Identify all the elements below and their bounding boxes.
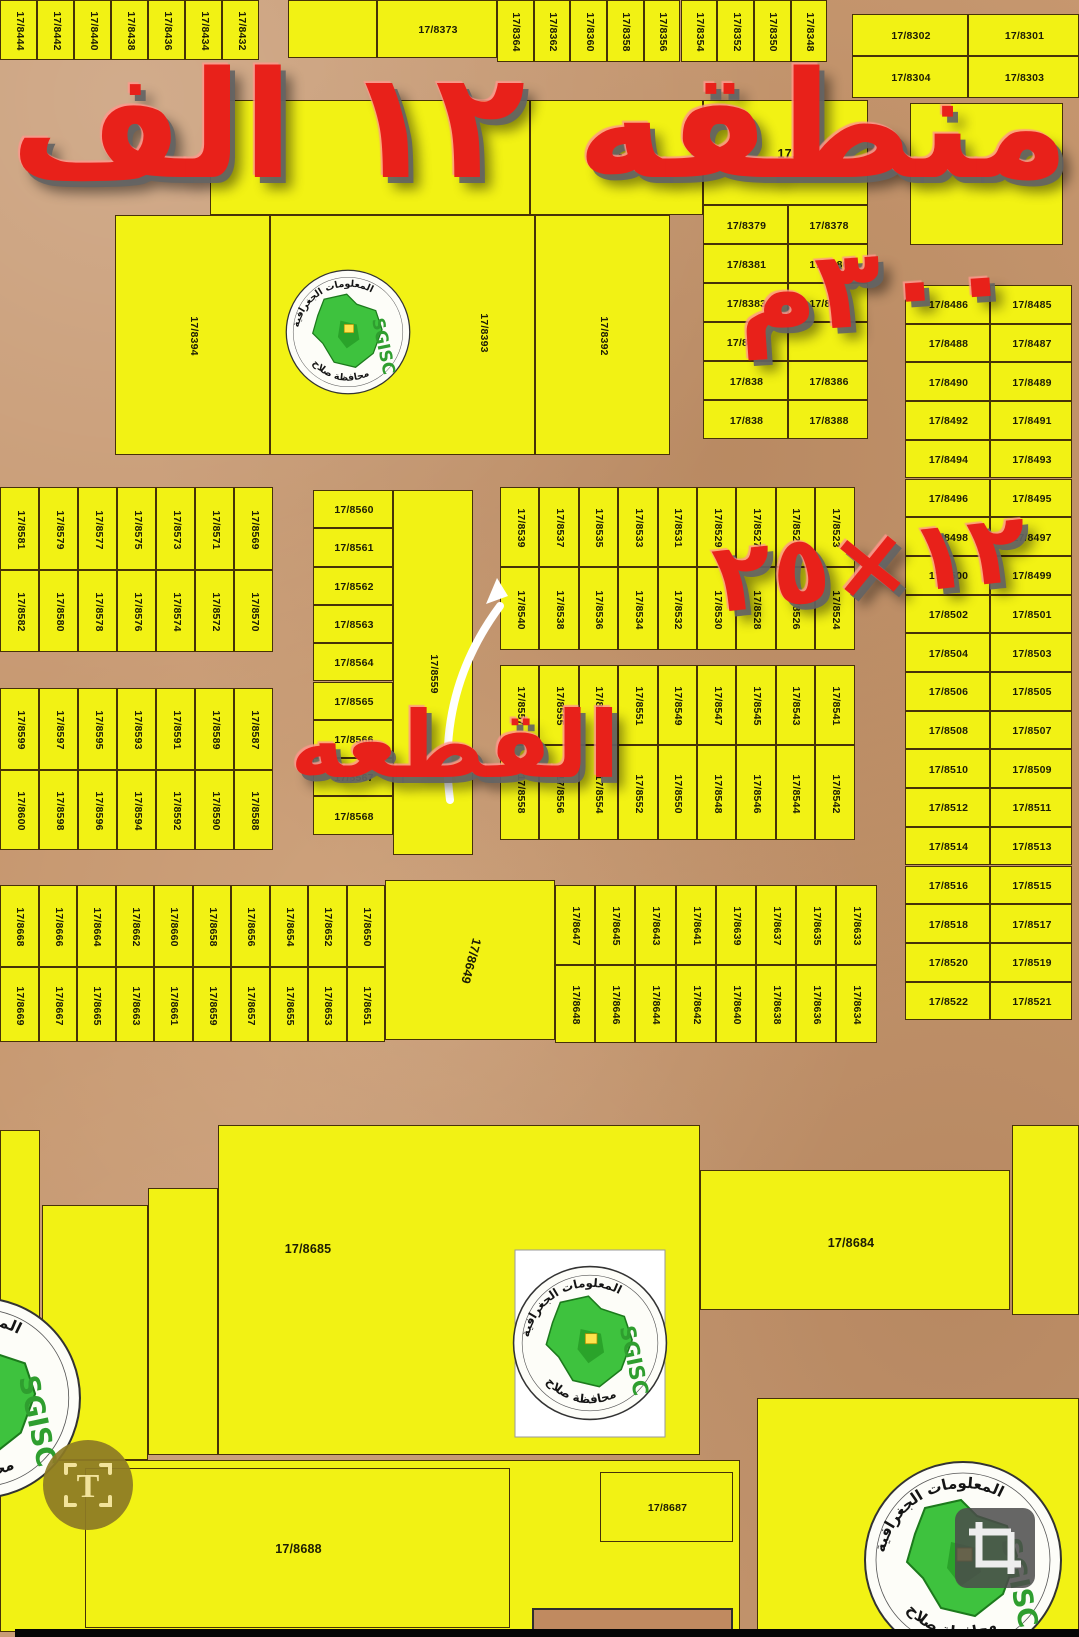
t-icon-letter: T bbox=[77, 1468, 100, 1505]
area-size-overlay: ٣٠٠م bbox=[687, 222, 1064, 356]
sgisc-seal-top bbox=[286, 270, 409, 393]
text-scan-icon[interactable]: T bbox=[43, 1440, 133, 1530]
crop-icon[interactable] bbox=[955, 1508, 1035, 1588]
region-title-overlay: منطقه ١٢ الف bbox=[0, 52, 1079, 200]
bottom-black-bar bbox=[15, 1629, 1079, 1637]
sgisc-seal-center bbox=[514, 1267, 667, 1420]
cadastral-map: 17/837317.17.17/839417/839317/839217/855… bbox=[0, 0, 1079, 1637]
plot-callout-overlay: القطعه bbox=[285, 700, 625, 792]
